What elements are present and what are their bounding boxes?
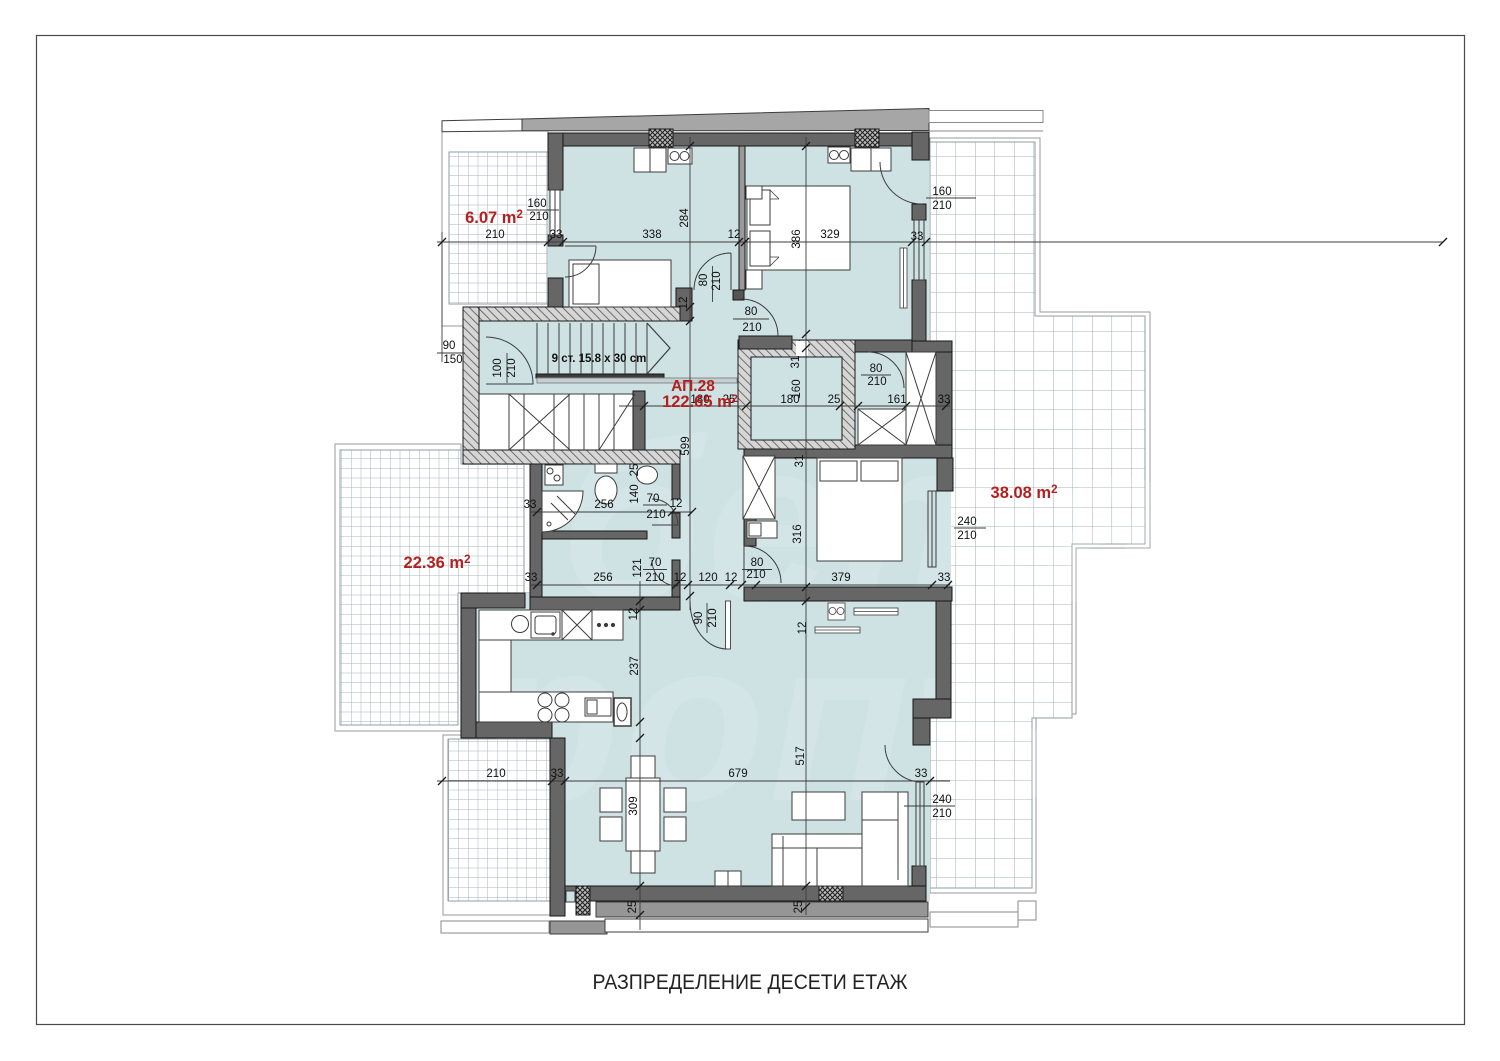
svg-text:210: 210 (957, 530, 976, 542)
svg-text:25: 25 (828, 394, 841, 406)
svg-text:12: 12 (670, 498, 683, 510)
svg-text:38.08 m2: 38.08 m2 (991, 484, 1058, 502)
svg-text:6.07 m2: 6.07 m2 (465, 209, 523, 227)
svg-text:160: 160 (791, 379, 803, 398)
svg-text:12: 12 (725, 572, 738, 584)
svg-text:12: 12 (797, 622, 809, 635)
svg-text:12: 12 (678, 297, 690, 310)
svg-text:256: 256 (594, 499, 613, 511)
svg-text:122.65 m2: 122.65 m2 (662, 393, 738, 411)
svg-text:679: 679 (728, 768, 747, 780)
svg-text:33: 33 (550, 229, 563, 241)
svg-text:31: 31 (790, 356, 802, 369)
svg-text:80: 80 (745, 306, 758, 318)
svg-text:329: 329 (820, 229, 839, 241)
svg-text:256: 256 (593, 572, 612, 584)
svg-text:90: 90 (693, 612, 705, 625)
svg-text:210: 210 (707, 608, 719, 627)
svg-text:309: 309 (628, 796, 640, 815)
svg-text:150: 150 (443, 354, 462, 366)
svg-text:33: 33 (938, 394, 951, 406)
svg-text:210: 210 (646, 509, 665, 521)
svg-text:80: 80 (698, 274, 710, 287)
svg-text:386: 386 (791, 229, 803, 248)
svg-text:210: 210 (529, 211, 548, 223)
svg-text:33: 33 (525, 572, 538, 584)
svg-text:210: 210 (867, 376, 886, 388)
svg-text:210: 210 (645, 572, 664, 584)
svg-text:25: 25 (793, 901, 805, 914)
svg-text:80: 80 (870, 363, 883, 375)
svg-text:210: 210 (932, 200, 951, 212)
svg-text:379: 379 (831, 572, 850, 584)
svg-text:210: 210 (742, 322, 761, 334)
svg-text:90: 90 (443, 340, 456, 352)
svg-text:33: 33 (524, 499, 537, 511)
svg-text:210: 210 (506, 358, 518, 377)
svg-text:31: 31 (794, 455, 806, 468)
svg-text:22.36 m2: 22.36 m2 (404, 554, 471, 572)
svg-text:316: 316 (792, 524, 804, 543)
svg-text:33: 33 (938, 572, 951, 584)
svg-text:517: 517 (795, 746, 807, 765)
svg-text:РАЗПРЕДЕЛЕНИЕ ДЕСЕТИ ЕТАЖ: РАЗПРЕДЕЛЕНИЕ ДЕСЕТИ ЕТАЖ (593, 970, 908, 994)
svg-text:12: 12 (728, 229, 741, 241)
svg-text:120: 120 (698, 572, 717, 584)
svg-text:9 ст. 15.8 x 30 cm: 9 ст. 15.8 x 30 cm (552, 353, 647, 365)
svg-text:240: 240 (957, 516, 976, 528)
svg-text:70: 70 (647, 493, 660, 505)
svg-text:121: 121 (632, 558, 644, 577)
svg-text:12: 12 (674, 572, 687, 584)
svg-text:210: 210 (932, 808, 951, 820)
svg-text:161: 161 (887, 394, 906, 406)
svg-text:284: 284 (679, 208, 691, 228)
svg-text:210: 210 (711, 271, 723, 290)
svg-text:25: 25 (627, 901, 639, 914)
svg-text:33: 33 (915, 768, 928, 780)
svg-text:160: 160 (527, 198, 546, 210)
svg-text:160: 160 (932, 186, 951, 198)
svg-text:25: 25 (629, 464, 641, 477)
svg-text:12: 12 (628, 608, 640, 621)
svg-text:240: 240 (932, 794, 951, 806)
svg-text:100: 100 (492, 358, 504, 377)
svg-text:599: 599 (680, 436, 692, 455)
svg-text:210: 210 (746, 569, 765, 581)
svg-text:237: 237 (629, 656, 641, 675)
svg-text:33: 33 (551, 768, 564, 780)
svg-text:210: 210 (485, 229, 504, 241)
svg-text:140: 140 (629, 484, 641, 503)
svg-text:210: 210 (486, 768, 505, 780)
svg-text:33: 33 (911, 231, 924, 243)
svg-text:338: 338 (642, 229, 661, 241)
svg-text:70: 70 (649, 557, 662, 569)
